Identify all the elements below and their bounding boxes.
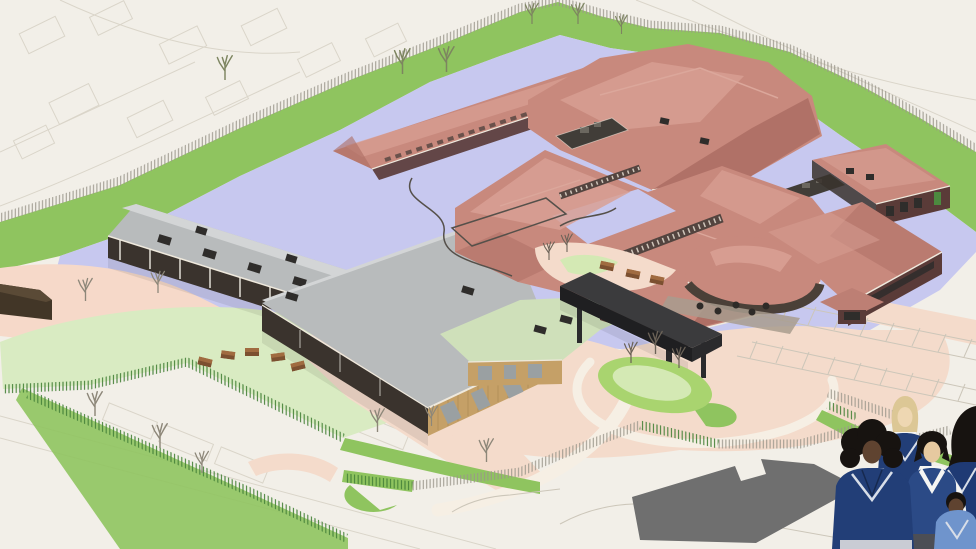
school-campus-cgi	[0, 0, 976, 549]
link-windows	[478, 364, 542, 380]
architectural-rendering	[0, 0, 976, 549]
east-wing-door	[934, 192, 941, 205]
